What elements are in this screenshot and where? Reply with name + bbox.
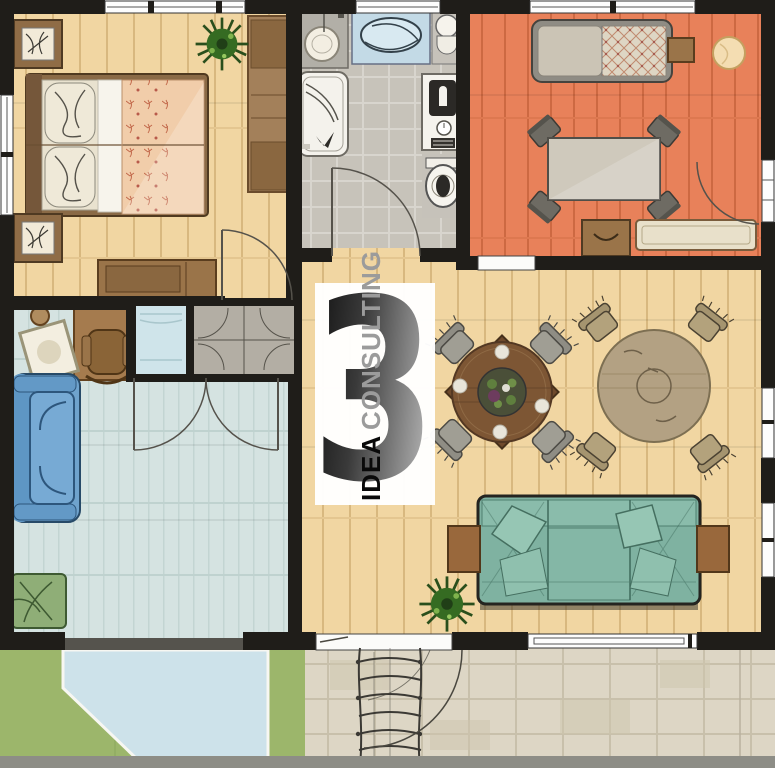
- bathroom-shower: [352, 10, 430, 64]
- watermark-word-secondary: CONSULTING: [356, 250, 386, 430]
- window-bedroom-left: [1, 95, 13, 215]
- sofa-side-table-left: [448, 526, 480, 572]
- door-orange-right: [762, 160, 774, 222]
- daybed: [532, 20, 672, 82]
- salad-platter: [478, 368, 526, 416]
- window-living-right-2: [762, 503, 774, 577]
- orange-room-bench: [636, 220, 756, 250]
- bathroom-sink: [300, 10, 348, 68]
- window-orange-top: [530, 1, 695, 13]
- window-bedroom-top: [105, 1, 245, 13]
- dining-table-dark: [423, 315, 580, 469]
- sliding-door-threshold: [65, 638, 243, 650]
- window-bathroom-top: [356, 1, 440, 13]
- nightstand: [14, 214, 62, 262]
- blue-sofa: [12, 374, 80, 522]
- bathtub: [298, 72, 348, 156]
- bottom-edge-strip: [0, 756, 775, 768]
- plate: [493, 425, 507, 439]
- window-living-right-1: [762, 388, 774, 458]
- bedroom-wardrobe: [248, 16, 290, 192]
- potted-plant-living: [419, 576, 474, 631]
- office-desk-set: [20, 307, 132, 383]
- floor-plan: 3 IDEA CONSULTING: [0, 0, 775, 768]
- watermark-word-primary: IDEA: [356, 435, 386, 501]
- potted-plant-bedroom: [196, 18, 249, 71]
- nightstand: [14, 20, 62, 68]
- terrace-door-threshold: [316, 634, 452, 650]
- plate: [495, 345, 509, 359]
- plate: [453, 379, 467, 393]
- orange-room-nightstand: [582, 220, 630, 256]
- watermark: 3 IDEA CONSULTING: [311, 247, 436, 537]
- closet-light-floor: [136, 306, 186, 374]
- window-living-bottom: [528, 634, 697, 648]
- plate: [535, 399, 549, 413]
- pouf: [713, 37, 745, 69]
- bedroom-bench: [98, 260, 216, 298]
- green-armchair: [12, 574, 66, 628]
- double-bed: [26, 74, 208, 216]
- sofa-side-table-right: [697, 526, 729, 572]
- bed-pillow: [45, 83, 95, 143]
- floor-plan-canvas: 3 IDEA CONSULTING: [0, 0, 775, 768]
- bed-pillow: [45, 147, 95, 207]
- teal-sofa: [478, 496, 700, 610]
- daybed-side-table: [668, 38, 694, 62]
- orange-room-door-threshold: [478, 256, 535, 270]
